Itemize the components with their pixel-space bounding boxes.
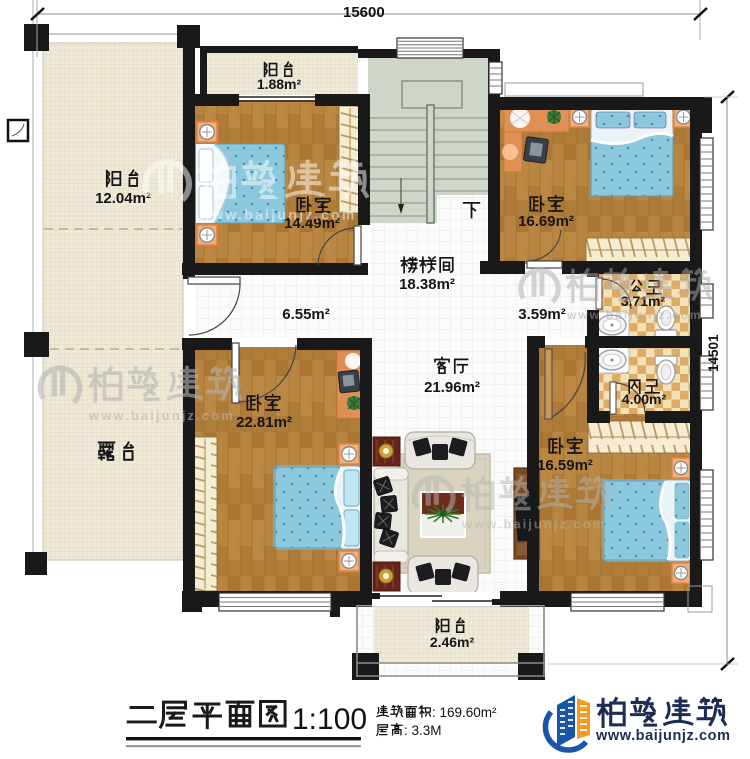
svg-text:22.81m²: 22.81m² <box>236 414 292 431</box>
svg-text:21.96m²: 21.96m² <box>424 379 480 396</box>
svg-text:www.baijunjz.com: www.baijunjz.com <box>198 207 357 223</box>
svg-text:3.59m²: 3.59m² <box>518 306 566 323</box>
svg-text:1.88m²: 1.88m² <box>257 76 302 92</box>
svg-text:2.46m²: 2.46m² <box>430 634 475 650</box>
svg-text:16.69m²: 16.69m² <box>518 213 574 230</box>
svg-text:1:100: 1:100 <box>292 703 367 736</box>
svg-text:15600: 15600 <box>343 4 385 21</box>
svg-text:16.59m²: 16.59m² <box>537 457 593 474</box>
svg-text:www.baijunjz.com: www.baijunjz.com <box>461 517 606 532</box>
svg-text:12.04m²: 12.04m² <box>95 190 151 207</box>
svg-text:www.baijunjz.com: www.baijunjz.com <box>88 408 235 423</box>
svg-text:: 3.3M: : 3.3M <box>404 723 442 738</box>
svg-text:14501: 14501 <box>706 334 721 372</box>
svg-text:www.baijunjz.com: www.baijunjz.com <box>595 728 730 744</box>
svg-text:6.55m²: 6.55m² <box>282 306 330 323</box>
svg-text:www.baijunjz.com: www.baijunjz.com <box>566 308 703 322</box>
svg-text:18.38m²: 18.38m² <box>399 276 455 293</box>
svg-text:4.00m²: 4.00m² <box>622 391 667 407</box>
svg-text:: 169.60m²: : 169.60m² <box>432 705 497 720</box>
